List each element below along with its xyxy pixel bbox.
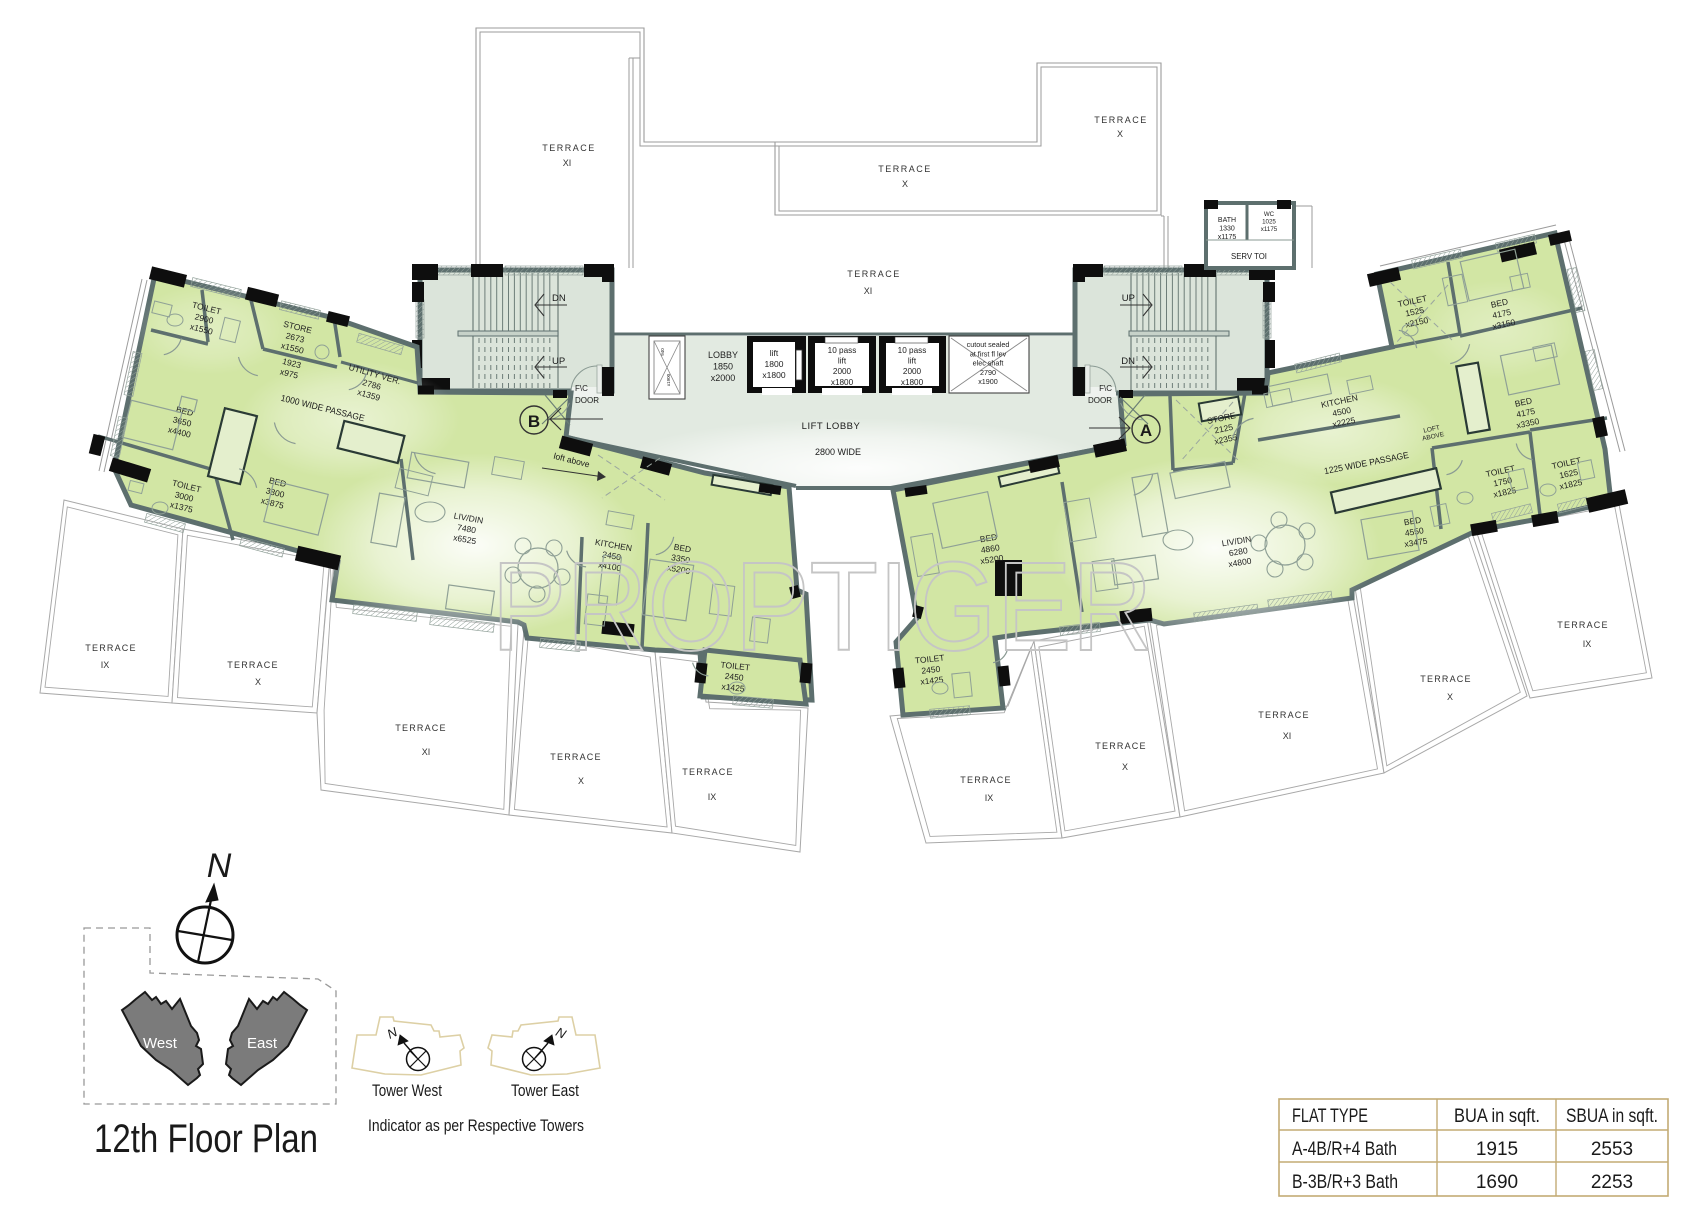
svg-text:TERRACE: TERRACE [85,643,136,653]
svg-text:lift: lift [838,357,847,366]
svg-text:x1800: x1800 [901,378,924,387]
svg-text:UP: UP [552,356,565,367]
svg-text:IX: IX [708,792,717,802]
svg-text:x1900: x1900 [666,373,671,386]
svg-text:2000: 2000 [833,367,852,376]
svg-text:1800: 1800 [765,359,784,369]
svg-text:Indicator as per Respective To: Indicator as per Respective Towers [368,1116,584,1135]
svg-text:TERRACE: TERRACE [395,723,446,733]
svg-text:TERRACE: TERRACE [878,164,932,174]
svg-text:TERRACE: TERRACE [1258,710,1309,720]
svg-text:X: X [578,776,584,786]
svg-text:FLAT TYPE: FLAT TYPE [1292,1106,1368,1127]
svg-text:SERV TOI: SERV TOI [1231,252,1267,261]
svg-text:Tower East: Tower East [511,1081,579,1100]
svg-text:B-3B/R+3 Bath: B-3B/R+3 Bath [1292,1172,1398,1193]
svg-text:TERRACE: TERRACE [682,767,733,777]
svg-text:F\C: F\C [1099,384,1112,393]
svg-text:2253: 2253 [1591,1172,1633,1193]
svg-text:TERRACE: TERRACE [1420,674,1471,684]
svg-text:x1175: x1175 [1261,226,1278,233]
svg-text:UP: UP [1122,293,1135,304]
svg-text:1330: 1330 [1219,226,1235,233]
svg-text:X: X [902,179,908,189]
svg-text:X: X [1447,692,1453,702]
svg-text:elec shaft: elec shaft [973,359,1004,368]
svg-text:lift: lift [770,348,779,358]
svg-text:X: X [255,677,261,687]
svg-text:x1800: x1800 [831,378,854,387]
svg-text:X: X [1117,129,1123,139]
svg-text:1915: 1915 [1476,1139,1518,1160]
svg-text:X: X [1122,762,1128,772]
svg-text:SBUA in sqft.: SBUA in sqft. [1566,1106,1658,1127]
svg-text:TERRACE: TERRACE [1095,741,1146,751]
svg-text:1850: 1850 [713,362,733,372]
svg-text:XI: XI [864,286,873,296]
svg-text:BATH: BATH [1218,217,1236,224]
svg-text:DN: DN [1121,356,1135,367]
svg-text:XI: XI [563,158,572,168]
svg-text:A: A [1140,421,1152,440]
svg-text:cutout sealed: cutout sealed [967,340,1010,349]
svg-text:TERRACE: TERRACE [1557,620,1608,630]
svg-text:2790: 2790 [980,368,996,377]
svg-text:N: N [207,847,232,885]
svg-text:1025: 1025 [1262,218,1276,225]
svg-text:1690: 1690 [1476,1172,1518,1193]
svg-text:LOBBY: LOBBY [708,350,738,360]
svg-text:TERRACE: TERRACE [227,660,278,670]
svg-text:TERRACE: TERRACE [847,269,901,279]
svg-text:LIFT LOBBY: LIFT LOBBY [802,421,861,432]
svg-text:DN: DN [552,293,566,304]
svg-text:IX: IX [101,660,110,670]
svg-text:x2000: x2000 [711,373,736,383]
svg-text:F\C: F\C [575,384,588,393]
svg-text:2800 WIDE: 2800 WIDE [815,447,861,457]
svg-text:IX: IX [985,793,994,803]
svg-text:PROPTIGER: PROPTIGER [492,536,1153,677]
svg-text:TERRACE: TERRACE [542,143,596,153]
svg-text:East: East [247,1035,278,1052]
svg-text:x1800: x1800 [762,370,785,380]
svg-text:BUA in sqft.: BUA in sqft. [1454,1106,1540,1127]
svg-text:TERRACE: TERRACE [960,775,1011,785]
svg-text:XI: XI [422,747,431,757]
svg-text:lift: lift [908,357,917,366]
svg-text:WC: WC [1264,211,1275,218]
svg-text:DOOR: DOOR [1088,396,1112,405]
svg-text:10 pass: 10 pass [828,346,857,355]
svg-text:IX: IX [1583,639,1592,649]
svg-text:TERRACE: TERRACE [550,752,601,762]
svg-text:Tower West: Tower West [372,1081,442,1100]
svg-text:940: 940 [660,348,665,356]
svg-text:2000: 2000 [903,367,922,376]
svg-text:10 pass: 10 pass [898,346,927,355]
svg-text:TERRACE: TERRACE [1094,115,1148,125]
svg-text:x1175: x1175 [1218,234,1237,241]
svg-text:x1900: x1900 [978,377,998,386]
svg-text:2553: 2553 [1591,1139,1633,1160]
svg-text:DOOR: DOOR [575,396,599,405]
svg-text:A-4B/R+4 Bath: A-4B/R+4 Bath [1292,1139,1397,1160]
svg-text:12th Floor Plan: 12th Floor Plan [94,1117,318,1161]
svg-text:West: West [143,1035,178,1052]
svg-text:B: B [528,412,540,431]
svg-text:at first fl lev: at first fl lev [970,349,1007,358]
svg-text:XI: XI [1283,731,1292,741]
